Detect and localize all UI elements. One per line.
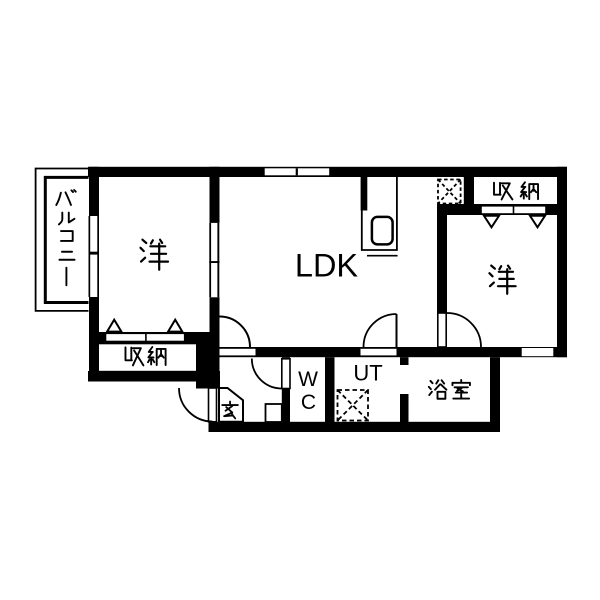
svg-text:UT: UT: [353, 361, 382, 386]
svg-text:LDK: LDK: [295, 247, 359, 283]
svg-text:W: W: [298, 368, 318, 391]
svg-text:C: C: [301, 391, 316, 414]
